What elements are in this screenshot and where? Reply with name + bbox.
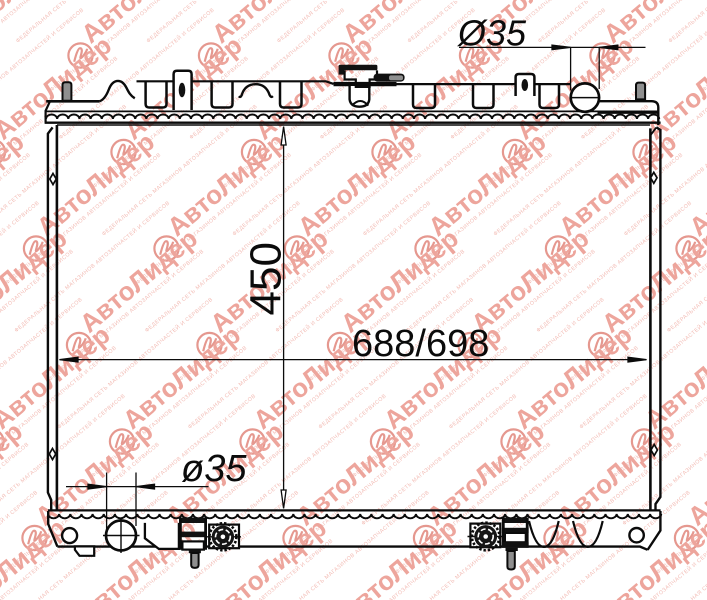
svg-text:450: 450 xyxy=(242,242,291,315)
svg-text:688/698: 688/698 xyxy=(352,323,489,365)
svg-text:ø35: ø35 xyxy=(181,448,247,490)
svg-text:Ø35: Ø35 xyxy=(457,13,527,54)
